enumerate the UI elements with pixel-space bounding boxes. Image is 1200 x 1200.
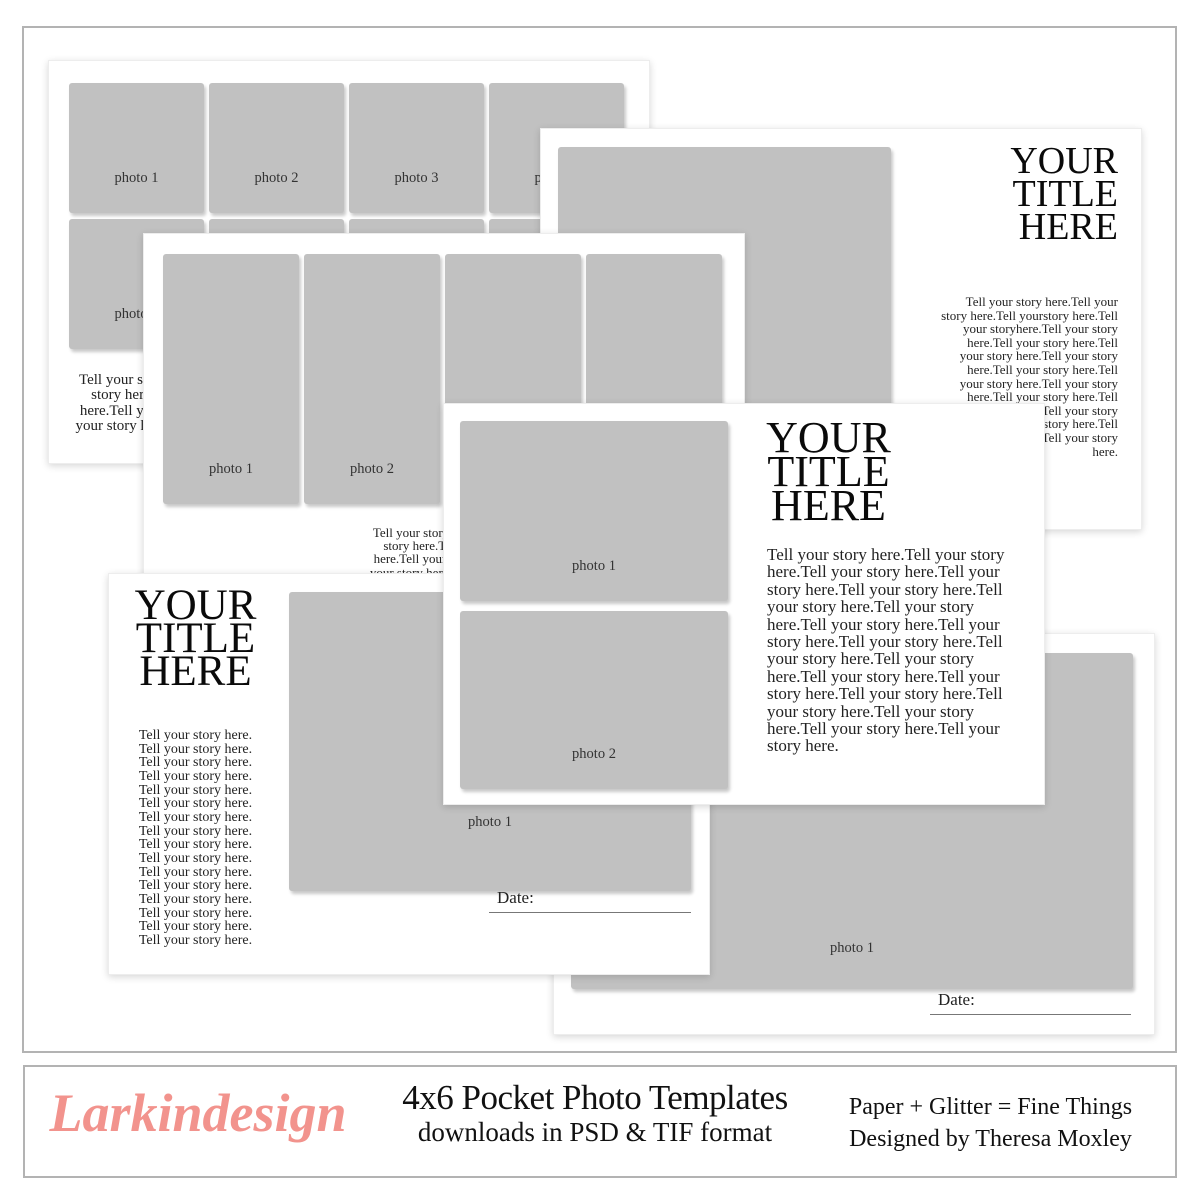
title-placeholder: YOUR TITLE HERE bbox=[117, 589, 274, 688]
product-subtitle: downloads in PSD & TIF format bbox=[300, 1117, 890, 1148]
photo-slot-label: photo 2 bbox=[209, 170, 344, 187]
photo-slot-label: photo 1 bbox=[289, 814, 691, 831]
photo-slot-label: photo 2 bbox=[304, 461, 440, 478]
date-field: Date: bbox=[930, 990, 1131, 1015]
product-preview-image: photo 1 photo 2 photo 3 photo 4 photo 5 … bbox=[0, 0, 1200, 1200]
photo-placeholder: photo 1 bbox=[69, 83, 204, 213]
date-field: Date: bbox=[489, 888, 691, 913]
photo-placeholder: photo 2 bbox=[304, 254, 440, 504]
photo-slot-label: photo 1 bbox=[460, 558, 728, 575]
card-two-photos-title-template: photo 1 photo 2 YOUR TITLE HERE Tell you… bbox=[443, 403, 1045, 805]
date-label: Date: bbox=[930, 990, 975, 1010]
credit-line-2: Designed by Theresa Moxley bbox=[828, 1126, 1153, 1153]
photo-placeholder: photo 3 bbox=[349, 83, 484, 213]
photo-placeholder: photo 1 bbox=[163, 254, 299, 504]
journaling-placeholder: Tell your story here.Tell your story her… bbox=[117, 729, 274, 949]
journaling-placeholder: Tell your story here.Tell your story her… bbox=[767, 546, 1005, 780]
date-label: Date: bbox=[489, 888, 534, 908]
photo-placeholder: photo 2 bbox=[460, 611, 728, 789]
photo-slot-label: photo 2 bbox=[460, 746, 728, 763]
photo-placeholder: photo 1 bbox=[460, 421, 728, 601]
title-placeholder: YOUR TITLE HERE bbox=[761, 421, 896, 523]
title-placeholder: YOUR TITLE HERE bbox=[909, 145, 1118, 244]
photo-slot-label: photo 1 bbox=[69, 170, 204, 187]
credit-line-1: Paper + Glitter = Fine Things bbox=[828, 1094, 1153, 1121]
product-title: 4x6 Pocket Photo Templates bbox=[300, 1078, 890, 1118]
photo-placeholder: photo 2 bbox=[209, 83, 344, 213]
photo-slot-label: photo 3 bbox=[349, 170, 484, 187]
photo-slot-label: photo 1 bbox=[163, 461, 299, 478]
